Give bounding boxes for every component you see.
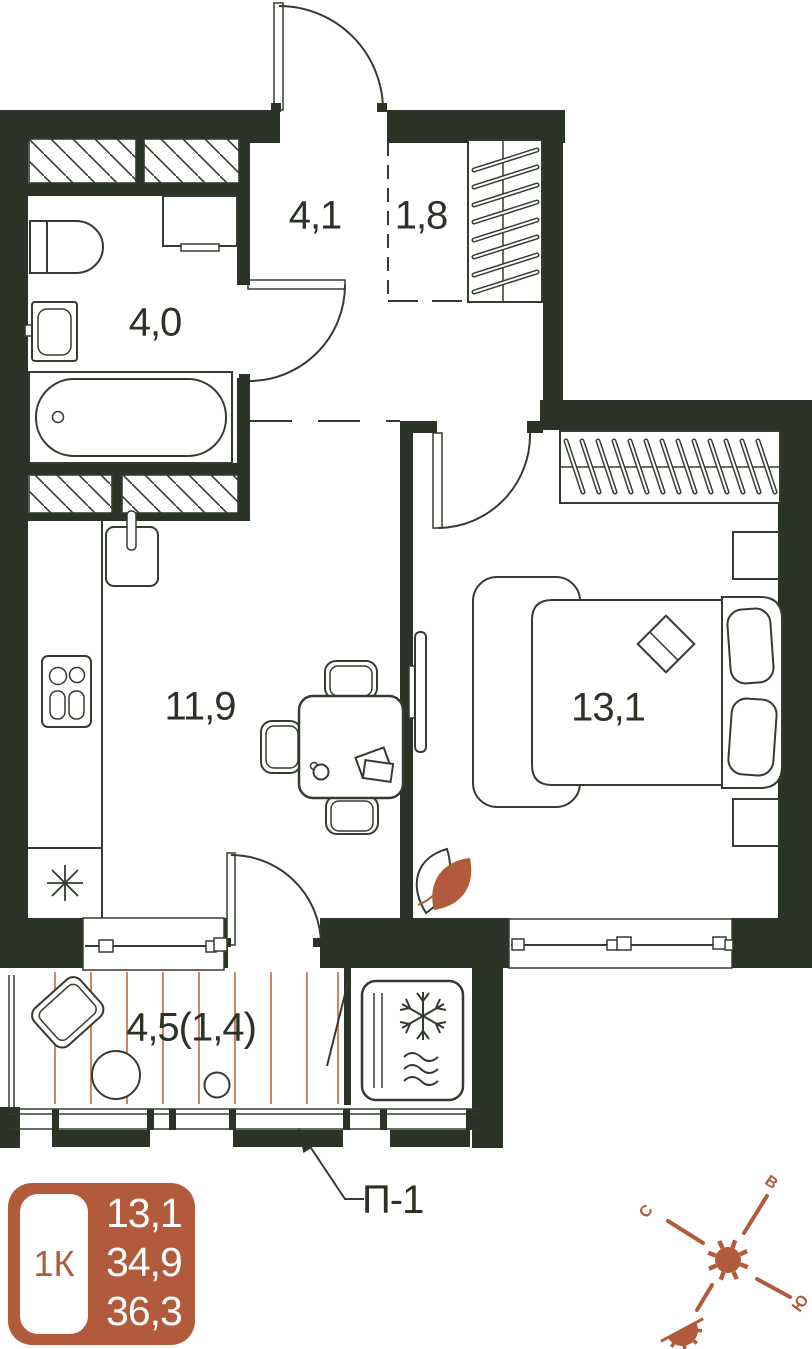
ac-closet: [327, 968, 463, 1105]
closet-wardrobe-hangers: [468, 140, 542, 302]
dining-set: [261, 661, 403, 834]
apartment-type: 1К: [20, 1194, 88, 1334]
room-label-closet: 1,8: [395, 194, 448, 239]
bedroom-window: [509, 919, 733, 968]
bedroom-wardrobe-hangers: [560, 431, 780, 503]
bathtub: [29, 372, 232, 463]
living-area-value: 13,1: [106, 1189, 182, 1238]
panel-label: П-1: [362, 1178, 423, 1223]
bedroom-door: [433, 433, 530, 528]
kitchen-window: [83, 918, 227, 970]
room-label-bathroom: 4,0: [129, 301, 182, 346]
bathroom-door: [239, 276, 345, 383]
room-label-bedroom: 13,1: [571, 686, 645, 731]
stove: [42, 656, 91, 727]
total-area-value: 36,3: [106, 1287, 182, 1336]
bathroom-sink: [25, 302, 77, 361]
room-label-hallway: 4,1: [289, 194, 342, 239]
floor-plan-page: 4,1 1,8 4,0 11,9 13,1 4,5(1,4) П-1 1К 13…: [0, 0, 812, 1349]
room-label-kitchen: 11,9: [165, 685, 236, 730]
compass-sunset-icon: [661, 1319, 712, 1349]
apartment-areas: 13,1 34,9 36,3: [106, 1189, 182, 1336]
entry-door: [271, 3, 387, 112]
apartment-area-value: 34,9: [106, 1238, 182, 1287]
kitchen-sink: [106, 511, 158, 586]
compass-sun-icon: [661, 1196, 790, 1349]
fridge-asterisk-icon: [47, 865, 83, 901]
washing-machine: [163, 196, 237, 251]
apartment-legend-badge: 1К 13,1 34,9 36,3: [8, 1183, 195, 1345]
balcony-door: [221, 853, 323, 968]
toilet: [30, 221, 103, 273]
room-label-balcony: 4,5(1,4): [126, 1006, 256, 1051]
plant: [417, 849, 472, 913]
